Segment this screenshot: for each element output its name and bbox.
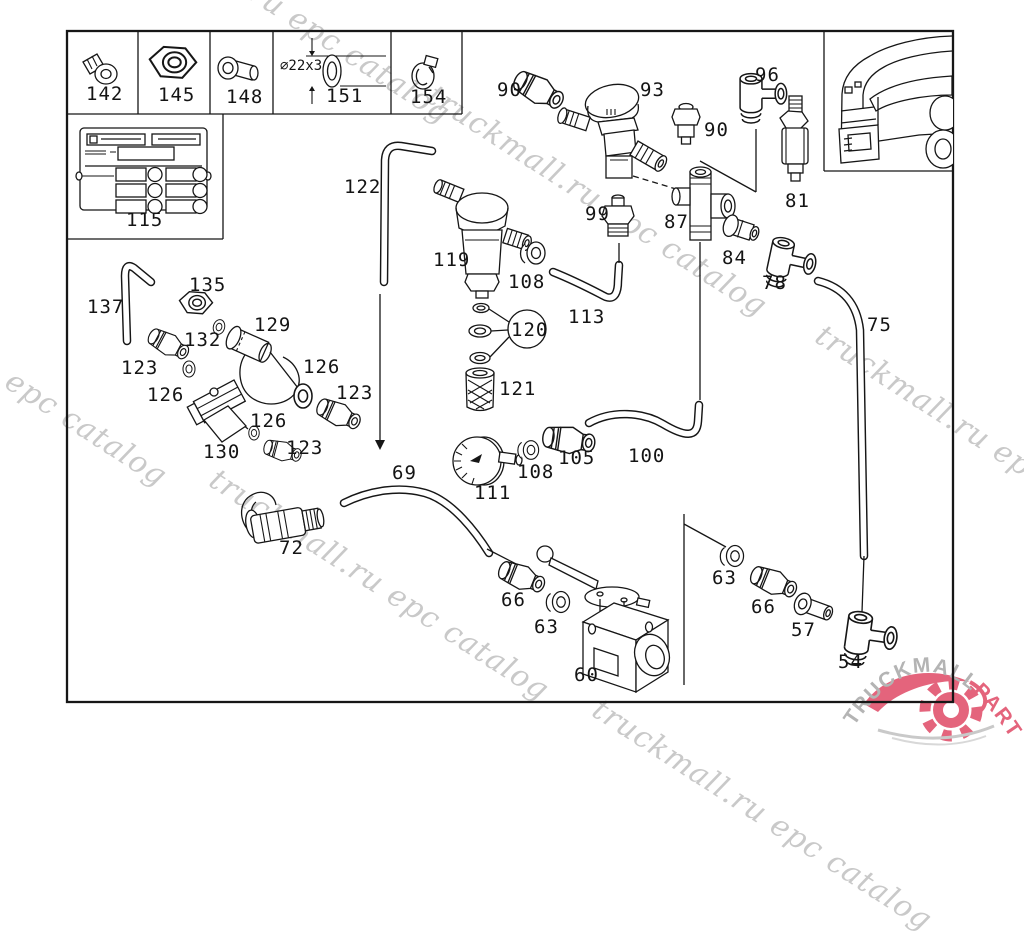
part-label-119: 119 (433, 251, 470, 270)
part-label-111: 111 (474, 484, 511, 503)
part-63-washer-right (720, 546, 743, 567)
part-126-oring-a (183, 361, 195, 377)
part-label-93: 93 (640, 81, 665, 100)
part-84-fitting (721, 213, 762, 245)
part-label-132: 132 (184, 331, 221, 350)
part-label-154: 154 (410, 88, 447, 107)
part-154-clamp (412, 56, 438, 89)
part-label-69: 69 (392, 464, 417, 483)
part-63-washer-left (546, 592, 569, 613)
part-label-121: 121 (499, 380, 536, 399)
part-label-137: 137 (87, 298, 124, 317)
part-75-hose (818, 281, 864, 556)
part-label-78: 78 (762, 274, 787, 293)
part-81-valve (780, 96, 808, 181)
part-145-nut (150, 47, 197, 78)
part-label-63b: 63 (712, 569, 737, 588)
part-label-96: 96 (755, 66, 780, 85)
part-label-126b: 126 (303, 358, 340, 377)
part-108-washer-upper (521, 242, 545, 264)
part-label-66a: 66 (501, 591, 526, 610)
part-115-control-panel (76, 128, 211, 214)
part-148-fitting (218, 57, 258, 80)
part-label-130: 130 (203, 443, 240, 462)
part-label-142: 142 (86, 85, 123, 104)
part-label-122: 122 (344, 178, 381, 197)
part-label-115: 115 (126, 211, 163, 230)
part-label-123a: 123 (121, 359, 158, 378)
part-108-washer-lower (518, 441, 539, 460)
part-100-hose (589, 405, 699, 434)
part-label-105: 105 (558, 449, 595, 468)
part-label-120: 120 (511, 321, 548, 340)
part-label-108b: 108 (517, 463, 554, 482)
connection-arrowhead (375, 440, 385, 450)
part-label-113: 113 (568, 308, 605, 327)
part-label-123c: 123 (286, 439, 323, 458)
part-label-60: 60 (574, 666, 599, 685)
part-label-123b: 123 (336, 384, 373, 403)
part-126-oring-b (294, 384, 312, 408)
truck-cab-sketch (839, 36, 960, 168)
part-label-90a: 90 (497, 81, 522, 100)
part-label-129: 129 (254, 316, 291, 335)
part-label-66b: 66 (751, 598, 776, 617)
part-137-hose (125, 266, 151, 341)
part-label-81: 81 (785, 192, 810, 211)
part-142-bolt (83, 54, 117, 84)
part-130-bracket-valve (186, 380, 246, 442)
part-label-135: 135 (189, 276, 226, 295)
part-label-75: 75 (867, 316, 892, 335)
part-label-126a: 126 (147, 386, 184, 405)
diameter-note: ⌀22x3 (280, 59, 322, 73)
part-label-54: 54 (838, 653, 863, 672)
part-label-100: 100 (628, 447, 665, 466)
part-label-99: 99 (585, 205, 610, 224)
part-90-plug (672, 104, 700, 145)
part-121-filter-cartridge (466, 368, 494, 411)
part-label-108a: 108 (508, 273, 545, 292)
part-label-72: 72 (279, 539, 304, 558)
part-122-hose (384, 146, 432, 282)
part-label-84: 84 (722, 249, 747, 268)
part-label-148: 148 (226, 88, 263, 107)
part-label-126c: 126 (250, 412, 287, 431)
part-label-57: 57 (791, 621, 816, 640)
part-69-pipe (344, 490, 489, 553)
part-113-pipe (553, 265, 619, 298)
part-label-63a: 63 (534, 618, 559, 637)
part-111-diaphragm (453, 437, 522, 485)
part-label-151: 151 (326, 87, 363, 106)
part-label-145: 145 (158, 86, 195, 105)
part-72-coupling (242, 492, 326, 543)
part-label-90b: 90 (704, 121, 729, 140)
part-label-87: 87 (664, 213, 689, 232)
